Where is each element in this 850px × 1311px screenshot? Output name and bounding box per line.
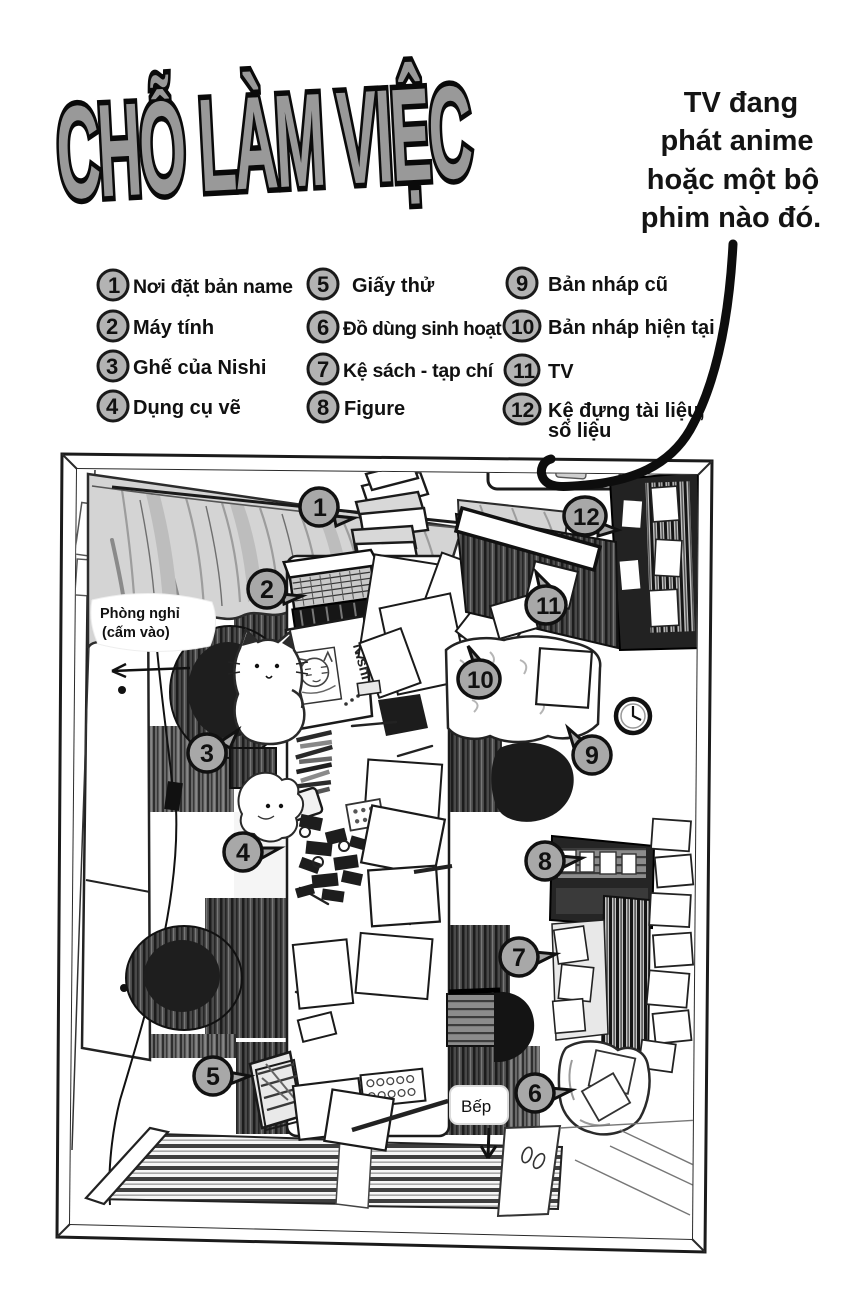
- svg-text:6: 6: [317, 315, 329, 340]
- svg-text:12: 12: [573, 504, 600, 531]
- svg-text:7: 7: [317, 357, 329, 382]
- svg-text:6: 6: [528, 1080, 542, 1108]
- svg-text:Figure: Figure: [344, 398, 405, 420]
- svg-text:hoặc một bộ: hoặc một bộ: [647, 164, 819, 196]
- svg-text:2: 2: [106, 314, 118, 339]
- svg-text:2: 2: [260, 576, 274, 604]
- svg-text:11: 11: [536, 593, 561, 620]
- svg-text:Bản nháp cũ: Bản nháp cũ: [548, 274, 668, 296]
- svg-text:4: 4: [236, 839, 250, 867]
- svg-text:8: 8: [538, 848, 552, 876]
- svg-text:11: 11: [513, 360, 536, 383]
- svg-text:8: 8: [317, 395, 329, 420]
- svg-text:Giấy thử: Giấy thử: [352, 275, 435, 297]
- svg-text:5: 5: [317, 272, 329, 297]
- svg-text:số liệu: số liệu: [548, 420, 611, 442]
- svg-text:Phòng nghỉ: Phòng nghỉ: [100, 606, 180, 622]
- svg-text:1: 1: [108, 273, 120, 298]
- svg-text:7: 7: [512, 944, 526, 972]
- svg-text:Dụng cụ vẽ: Dụng cụ vẽ: [133, 397, 241, 419]
- svg-text:12: 12: [511, 399, 534, 422]
- svg-text:4: 4: [106, 394, 119, 419]
- svg-text:1: 1: [313, 494, 327, 522]
- svg-text:Máy tính: Máy tính: [133, 317, 214, 339]
- svg-text:phát anime: phát anime: [660, 125, 813, 157]
- svg-text:Bếp: Bếp: [461, 1097, 491, 1116]
- svg-text:3: 3: [200, 740, 214, 768]
- svg-text:Nơi đặt bản name: Nơi đặt bản name: [133, 276, 293, 298]
- svg-text:Kệ sách - tạp chí: Kệ sách - tạp chí: [343, 360, 494, 382]
- svg-text:CHỖ LÀM VIỆC: CHỖ LÀM VIỆC: [53, 58, 474, 226]
- svg-text:3: 3: [106, 354, 118, 379]
- svg-text:TV đang: TV đang: [684, 87, 798, 119]
- svg-text:9: 9: [516, 271, 528, 296]
- svg-text:TV: TV: [548, 361, 574, 383]
- svg-text:9: 9: [585, 742, 599, 770]
- svg-text:Bản nháp hiện tại: Bản nháp hiện tại: [548, 317, 715, 339]
- svg-text:Kệ đựng tài liệu,: Kệ đựng tài liệu,: [548, 400, 705, 422]
- svg-text:Ghế của Nishi: Ghế của Nishi: [133, 357, 266, 379]
- svg-text:(cấm vào): (cấm vào): [102, 625, 170, 641]
- svg-text:phim nào đó.: phim nào đó.: [641, 202, 821, 234]
- svg-text:10: 10: [511, 316, 534, 339]
- svg-text:5: 5: [206, 1063, 220, 1091]
- svg-text:10: 10: [467, 667, 494, 694]
- svg-text:Đồ dùng sinh hoạt: Đồ dùng sinh hoạt: [343, 319, 502, 340]
